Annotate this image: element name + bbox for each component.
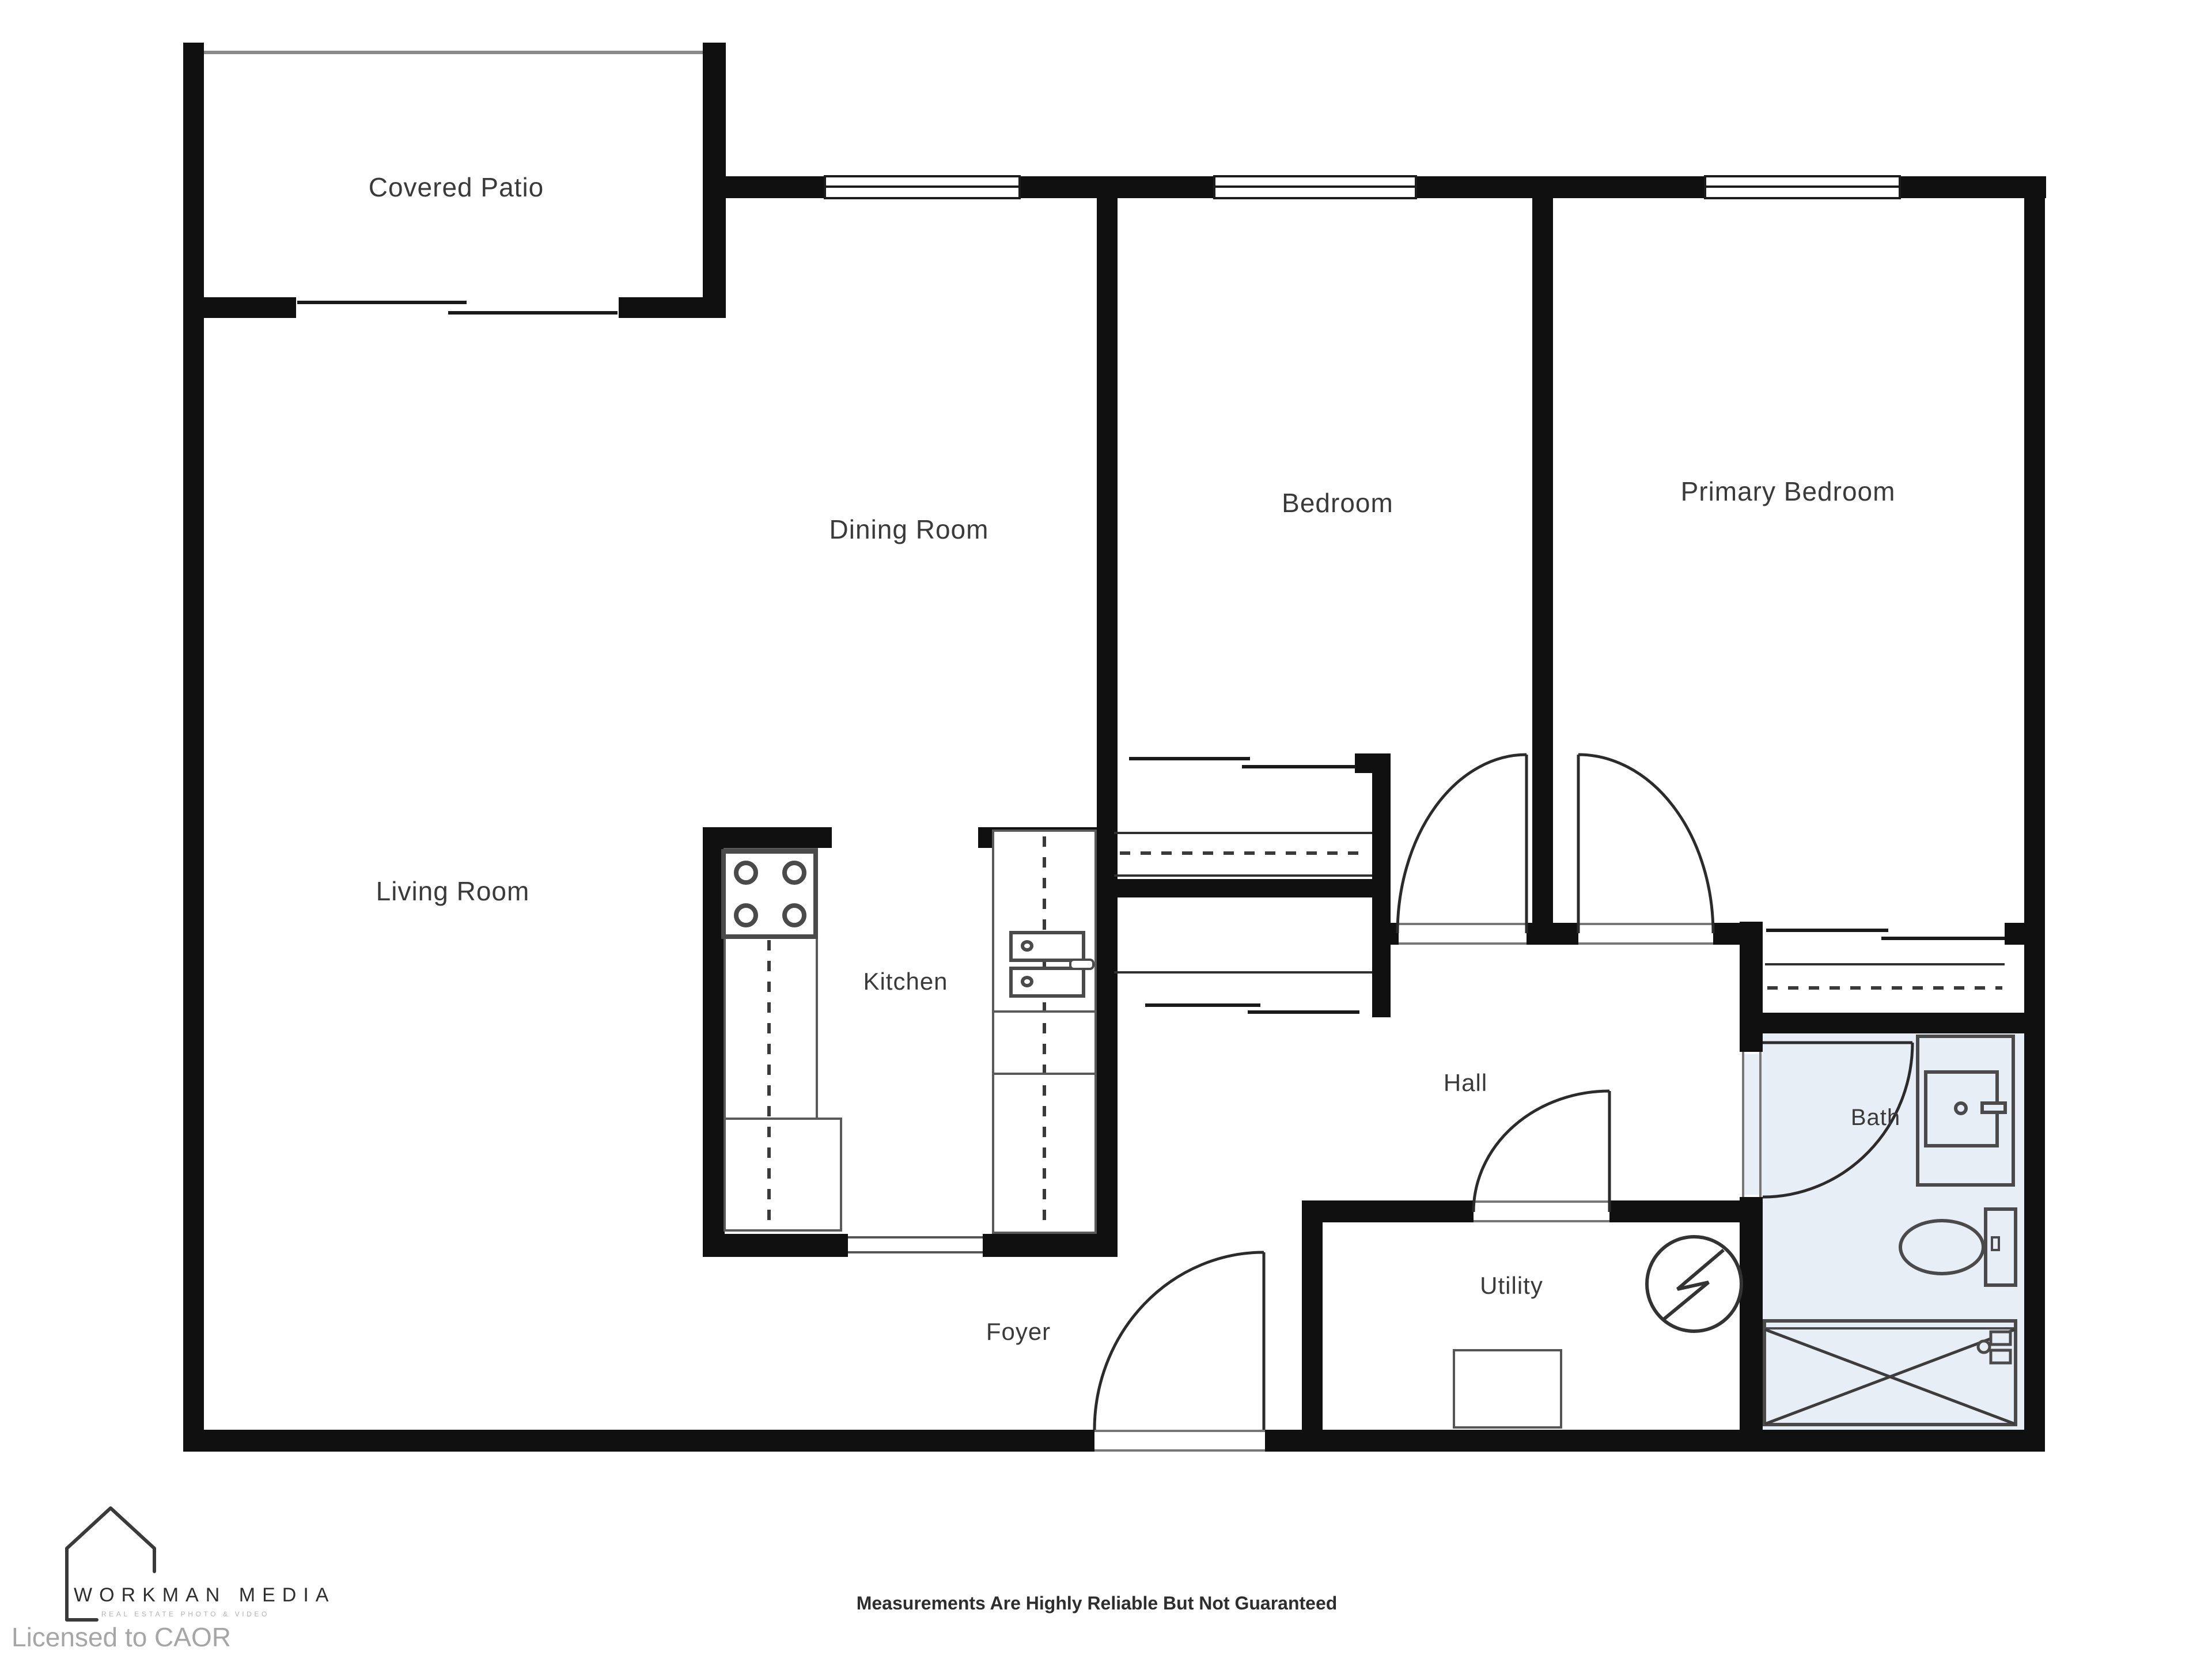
room-label-bedroom: Bedroom [1282,488,1393,519]
primary-doorway-jamb [1578,942,1713,945]
foyer-closet-panel-1 [1145,1003,1260,1007]
house-logo-icon [58,1500,164,1627]
bedroom-door-swing [1397,755,1527,933]
entry-doorway [1094,1430,1265,1452]
wall-utility-top-left [1302,1200,1474,1222]
bedroom-closet-shelf-line-2 [1114,874,1372,877]
utility-door-swing [1474,1091,1609,1212]
room-label-living-room: Living Room [376,876,530,907]
wall-left [183,43,204,1450]
wall-patio-right [703,43,726,318]
logo-title: WORKMAN MEDIA [74,1584,335,1607]
wall-kitchen-bottom-left [703,1234,848,1257]
wall-right [2024,176,2045,1452]
bedroom-doorway [1399,923,1527,945]
bedroom-doorway-jamb [1399,923,1527,925]
utility-doorway-jamb [1474,1200,1609,1203]
wall-closet-bottom [1114,879,1372,897]
primary-doorway [1578,923,1713,945]
patio-edge-line [204,51,703,54]
room-label-foyer: Foyer [986,1319,1051,1347]
kitchen-counter-divider [992,1010,1097,1013]
foyer-closet-panel-2 [1248,1010,1359,1014]
stove-burner [782,861,806,885]
room-label-utility: Utility [1480,1273,1543,1301]
toilet-tank [1984,1207,2017,1287]
logo-tagline: REAL ESTATE PHOTO & VIDEO [101,1612,270,1619]
utility-doorway [1474,1200,1609,1222]
room-label-kitchen: Kitchen [863,969,948,997]
primary-closet-front-line [1765,963,2005,965]
toilet-button [1991,1236,2000,1251]
utility-doorway-jamb [1474,1220,1609,1222]
wall-bottom-right [1265,1430,2045,1452]
bedroom-closet-panel-2 [1242,765,1356,768]
bedroom-doorway-jamb [1399,942,1527,945]
primary-closet-rod [1767,986,2002,990]
room-label-primary-bedroom: Primary Bedroom [1681,476,1896,507]
wall-kitchen-bottom-right [983,1234,1118,1257]
electrical-panel-icon [1645,1235,1743,1333]
window-dining [824,175,1021,199]
wall-patio-bottom-left [183,297,297,318]
wall-patio-bottom-right [618,297,726,318]
stove-burner [782,903,806,927]
patio-slider-panel-1 [297,301,467,304]
wall-bedroom-primary-divider [1532,198,1553,945]
wall-hall-top-b [1527,923,1578,945]
kitchen-counter-left-return [724,1118,842,1232]
bath-doorway-jamb [1759,1052,1762,1197]
foyer-closet-shelf-line [1114,971,1372,974]
wall-utility-left [1302,1200,1323,1430]
primary-bedroom-door-swing [1578,755,1713,933]
room-label-hall: Hall [1444,1070,1487,1098]
primary-closet-sliding-door [1763,923,2005,945]
kitchen-counter-divider [992,1073,1097,1075]
toilet-icon [1899,1219,1985,1275]
disclaimer-text: Measurements Are Highly Reliable But Not… [857,1594,1338,1615]
primary-doorway-jamb [1578,923,1713,925]
floor-plan-page: Covered Patio Dining Room Bedroom Primar… [0,0,2212,1659]
kitchen-faucet-icon [1069,959,1094,970]
kitchen-opening-line [848,1236,983,1238]
room-label-dining-room: Dining Room [829,514,989,546]
vanity-sink-drain [1954,1101,1968,1115]
stove-burner [734,861,758,885]
bath-doorway-jamb [1742,1052,1744,1197]
stove-icon [721,849,818,939]
entry-doorway-jamb [1094,1430,1265,1432]
license-text: Licensed to CAOR [12,1622,231,1653]
bedroom-closet-panel-1 [1129,757,1250,760]
bathtub-inner-line [1765,1327,2015,1330]
entry-door-swing [1094,1252,1264,1430]
wall-bath-top [1740,1013,2024,1033]
stove-burner [734,903,758,927]
patio-slider-panel-2 [448,311,618,315]
kitchen-counter-right-centerline [1043,836,1046,1227]
water-heater-icon [1453,1349,1562,1429]
primary-closet-panel-1 [1766,929,1888,932]
kitchen-sink-drain [1021,940,1033,952]
room-label-bath: Bath [1851,1105,1900,1132]
wall-utility-top-right [1609,1200,1740,1222]
window-primary-bedroom [1704,175,1901,199]
primary-closet-panel-2 [1881,937,2005,940]
room-label-covered-patio: Covered Patio [369,172,544,203]
wall-dining-bedroom-divider [1097,198,1118,1257]
bedroom-closet-shelf-line-1 [1114,832,1372,834]
wall-closet-stub [1372,753,1391,1017]
wall-kitchen-top-left [703,827,832,848]
wall-closet-top-chunk [1355,753,1391,773]
wall-bath-divider-bottom [1740,1197,1763,1430]
entry-doorway-jamb [1094,1449,1265,1452]
kitchen-opening-line [848,1251,983,1253]
wall-primary-closet-stub [2005,923,2024,945]
vanity-faucet-icon [1980,1101,2007,1114]
bathtub-icon [1763,1319,2017,1426]
bedroom-closet-rod [1120,851,1369,855]
window-bedroom [1213,175,1417,199]
kitchen-sink-drain [1021,976,1033,987]
wall-bottom-left [183,1430,1094,1452]
